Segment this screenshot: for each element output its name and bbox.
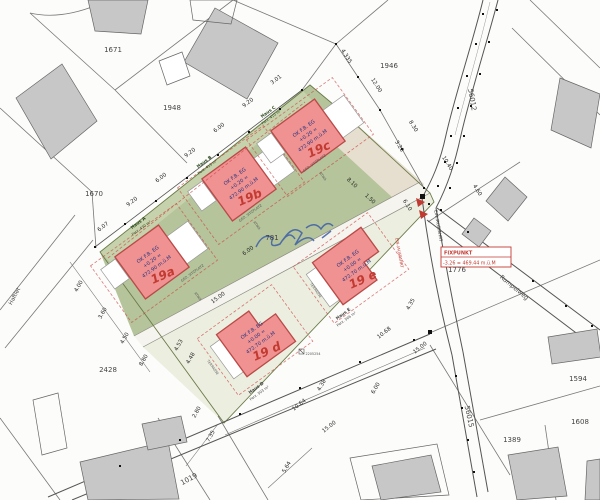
- survey-point: [437, 185, 439, 187]
- street-name: EIN-/AUSFAHRT: [394, 237, 404, 268]
- dimension-label: 6.00: [155, 172, 169, 185]
- survey-point: [335, 43, 337, 45]
- survey-point: [299, 387, 301, 389]
- dimension-label: 12.00: [369, 77, 383, 94]
- survey-point: [496, 9, 498, 11]
- dimension-label: 9.20: [242, 97, 256, 110]
- survey-point: [379, 109, 381, 111]
- survey-point: [463, 135, 465, 137]
- parcel-number: 1019: [179, 472, 198, 487]
- annotation-label: 2205254: [305, 352, 320, 356]
- dimension-label: 5.64: [281, 460, 293, 474]
- dimension-label: 4.335: [339, 48, 353, 65]
- survey-point: [532, 280, 534, 282]
- dimension-label: 9.20: [126, 196, 140, 209]
- survey-point: [467, 439, 469, 441]
- dimension-label: 8.80: [138, 353, 150, 367]
- survey-point: [466, 75, 468, 77]
- survey-point: [94, 246, 96, 248]
- parcel-number: 1389: [503, 436, 521, 444]
- parcel-number: 1776: [448, 266, 466, 274]
- survey-point: [186, 177, 188, 179]
- survey-point: [155, 200, 157, 202]
- survey-point: [455, 375, 457, 377]
- survey-point: [488, 41, 490, 43]
- parcel-number: 1670: [85, 190, 103, 198]
- dimension-label: 4.00: [73, 279, 85, 293]
- dimension-label: 2.80: [191, 405, 203, 419]
- parcel-number: 1594: [569, 375, 587, 383]
- road-center-line: [455, 2, 490, 135]
- parcel-number: 1671: [104, 46, 122, 54]
- survey-point: [467, 231, 469, 233]
- existing-building: [585, 459, 600, 500]
- survey-point: [119, 465, 121, 467]
- dimension-label: 8.30: [407, 120, 419, 134]
- survey-point: [482, 13, 484, 15]
- existing-building: [462, 218, 491, 247]
- fixpunkt-title: FIXPUNKT: [444, 251, 473, 257]
- junction-marker: [428, 330, 432, 334]
- survey-point: [461, 407, 463, 409]
- existing-building-outline: [159, 52, 190, 85]
- existing-building: [16, 64, 97, 159]
- parcel-number: 781: [265, 234, 278, 242]
- survey-point: [479, 73, 481, 75]
- dimension-label: 4.35: [405, 297, 417, 311]
- junction-marker: [420, 194, 425, 199]
- dimension-label: 3.01: [270, 74, 283, 86]
- parcel-number: 1948: [163, 104, 181, 112]
- dimension-label: 4.38: [316, 378, 328, 392]
- survey-point: [217, 154, 219, 156]
- existing-building: [372, 455, 441, 500]
- survey-point: [301, 89, 303, 91]
- survey-point: [457, 107, 459, 109]
- existing-building: [142, 416, 187, 450]
- dimension-label: 6.07: [97, 221, 111, 234]
- survey-point: [357, 76, 359, 78]
- existing-building: [80, 441, 179, 500]
- dimension-label: 6.00: [370, 381, 382, 395]
- survey-point: [239, 413, 241, 415]
- street-name: Haftlet: [8, 286, 22, 306]
- survey-point: [428, 203, 430, 205]
- survey-point: [248, 131, 250, 133]
- site-plan-scan: OK F.B. EG+0.20 =472.90 m.ü.M19aOK F.B. …: [0, 0, 600, 500]
- survey-point: [124, 223, 126, 225]
- survey-point: [591, 325, 593, 327]
- fixpunkt-box: FIXPUNKT -3.26 = 469.44 m.ü.M: [441, 247, 511, 267]
- survey-point: [413, 339, 415, 341]
- site-plan-canvas: OK F.B. EG+0.20 =472.90 m.ü.M19aOK F.B. …: [0, 0, 600, 500]
- survey-point: [450, 135, 452, 137]
- dimension-label: 4.60: [471, 184, 483, 198]
- dimension-label: 9.20: [184, 147, 198, 160]
- parcel-number: 1946: [380, 62, 398, 70]
- existing-building: [486, 177, 527, 221]
- dimension-label: 10.68: [376, 326, 392, 341]
- existing-building: [548, 329, 600, 364]
- survey-point: [475, 43, 477, 45]
- survey-point: [473, 471, 475, 473]
- survey-point: [565, 305, 567, 307]
- dimension-label: 6.00: [213, 122, 227, 135]
- dimension-label: 7.35: [205, 429, 217, 443]
- survey-point: [440, 209, 442, 211]
- parcel-number: 2428: [99, 366, 117, 374]
- existing-building: [88, 0, 148, 34]
- survey-point: [449, 187, 451, 189]
- parcel-number: 1608: [571, 418, 589, 426]
- existing-building: [551, 78, 600, 148]
- dimension-label: 10.40: [440, 155, 454, 172]
- street-name: Rumpelweg: [498, 274, 530, 302]
- curved-road-east-edge: [436, 0, 498, 208]
- survey-point: [456, 162, 458, 164]
- existing-building-outline: [33, 393, 67, 455]
- dimension-label: 15.00: [321, 420, 337, 435]
- survey-point: [179, 439, 181, 441]
- survey-point: [423, 187, 425, 189]
- existing-building: [508, 447, 567, 500]
- survey-point: [359, 361, 361, 363]
- existing-building: [184, 8, 278, 99]
